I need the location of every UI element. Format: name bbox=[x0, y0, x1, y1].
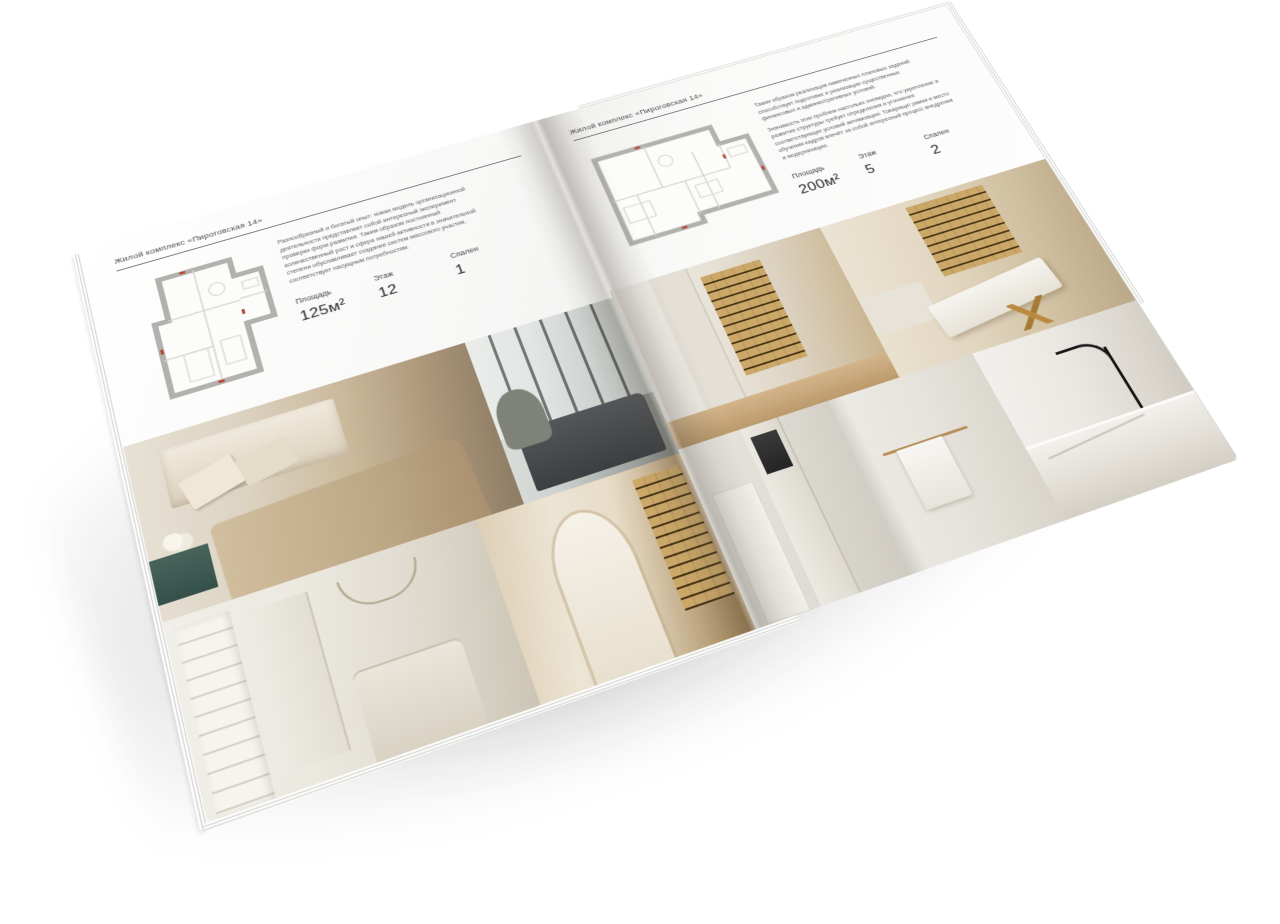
bookshelf-shape bbox=[906, 185, 1024, 277]
arch-decor-shape bbox=[336, 557, 425, 614]
towel-shape bbox=[897, 436, 973, 510]
stat-floor: Этаж 5 bbox=[857, 134, 936, 177]
black-faucet-shape bbox=[1055, 338, 1129, 400]
floor-plan-right bbox=[578, 104, 796, 260]
stat-floor: Этаж 12 bbox=[373, 253, 459, 302]
bed-shape bbox=[352, 638, 489, 763]
stat-bedrooms: Спален 1 bbox=[449, 231, 535, 279]
stat-area: Площадь 125м² bbox=[295, 275, 382, 325]
floor-plan-left bbox=[119, 241, 301, 414]
scene: Жилой комплекс «Пироговская 14» bbox=[0, 0, 1280, 835]
stat-area: Площадь 200м² bbox=[791, 154, 871, 198]
backdrop: Жилой комплекс «Пироговская 14» bbox=[0, 0, 1280, 835]
magazine-spread: Жилой комплекс «Пироговская 14» bbox=[79, 5, 1239, 822]
stat-bedrooms: Спален 2 bbox=[922, 115, 1001, 157]
floor-plan-left-wrap bbox=[119, 241, 303, 421]
teal-console-shape bbox=[149, 543, 219, 605]
